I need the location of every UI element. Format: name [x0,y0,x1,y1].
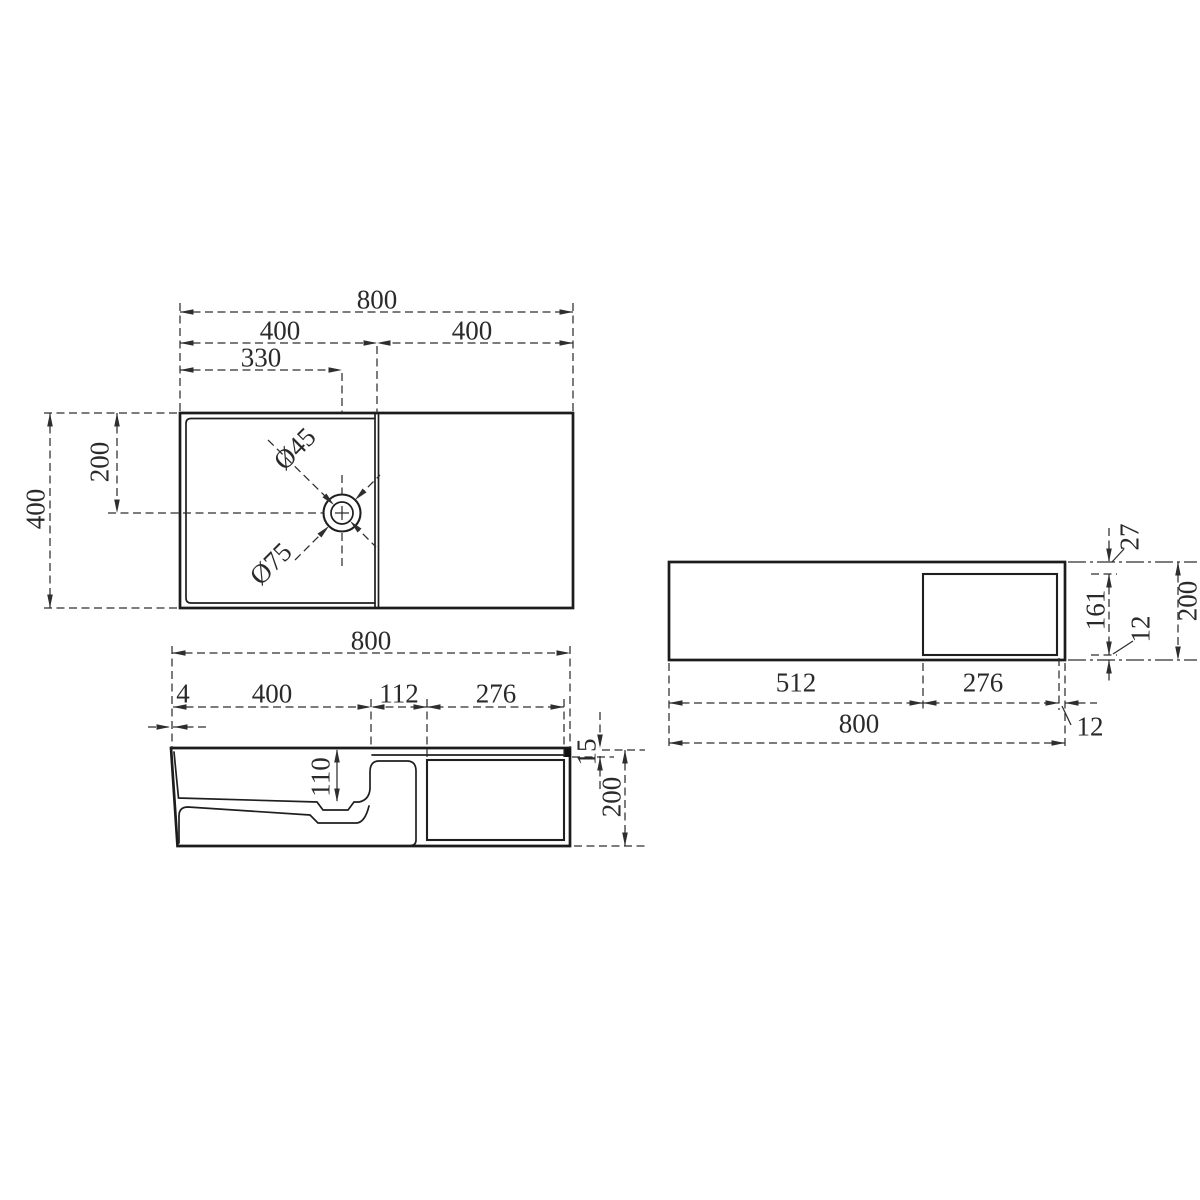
rear-elevation-view [669,528,1197,750]
rear-niche-width-label: 276 [963,670,1004,697]
rear-niche-height-label: 161 [1083,590,1110,631]
section-niche-rect [427,760,564,840]
section-top-thickness-label: 15 [574,739,601,766]
plan-width-left-label: 400 [260,318,301,345]
rear-niche-top-offset-label: 27 [1117,524,1144,551]
section-corner-fill [565,748,572,757]
plan-outer-rect [180,413,573,608]
rear-width-total-label: 800 [839,711,880,738]
plan-arrowheads [47,309,573,608]
section-basin-depth-label: 110 [308,757,335,797]
section-basin-width-label: 400 [252,681,293,708]
section-lip-label: 4 [176,681,190,708]
plan-height-total-label: 400 [23,489,50,530]
section-basin-profile [174,752,416,846]
section-shell-underline [179,806,369,843]
section-step-width-label: 112 [379,681,419,708]
rear-niche-bottom-offset-label: 12 [1128,616,1155,643]
rear-height-total-label: 200 [1175,581,1200,622]
plan-width-total-label: 800 [357,287,398,314]
section-outline [171,748,570,846]
rear-side-wall-label: 12 [1077,714,1104,741]
plan-drain-x-label: 330 [241,345,282,372]
plan-drain-y-label: 200 [87,442,114,483]
rear-leader-lines [1062,549,1133,725]
drain-center-mark [335,506,349,520]
drawing-linework [0,0,1200,1200]
rear-niche-rect [923,574,1057,655]
section-niche-width-label: 276 [476,681,517,708]
rear-outer-rect [669,562,1065,660]
rear-arrowheads [669,549,1181,746]
section-height-total-label: 200 [599,777,626,818]
section-width-total-label: 800 [351,628,392,655]
rear-left-width-label: 512 [776,670,817,697]
technical-drawing-sheet: 800 400 400 330 400 200 Ø45 Ø75 800 4 40… [0,0,1200,1200]
plan-width-right-label: 400 [452,318,493,345]
